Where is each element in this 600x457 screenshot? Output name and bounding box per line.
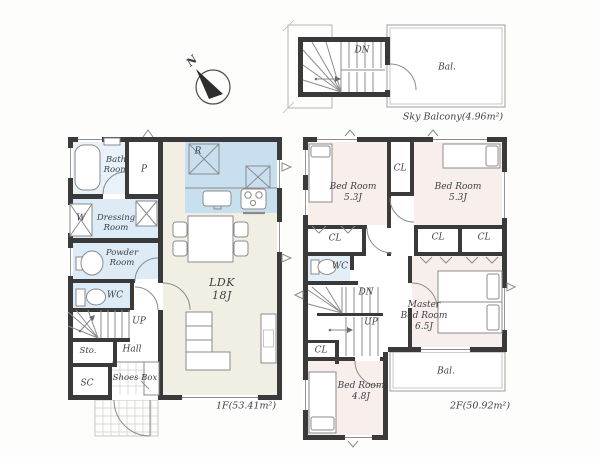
- sky-balcony-plan: [283, 20, 505, 113]
- label-dn-2f: DN: [358, 288, 373, 299]
- label-fridge: R: [195, 147, 202, 158]
- kitchen-sink: [203, 191, 231, 209]
- room-label-bedroom-right: Bed Room 5.3J: [435, 182, 482, 204]
- room-label-bath: Bath Room: [104, 155, 129, 175]
- room-label-wc-2f: WC: [332, 262, 348, 273]
- room-label-storage: Sto.: [80, 346, 97, 356]
- floorplan-page: N Bath Room P W Dressing Room Powder Roo…: [0, 0, 600, 457]
- room-label-balcony-2f: Bal.: [437, 367, 455, 378]
- toilet-1f: [76, 289, 106, 306]
- label-bal-sky: Bal.: [438, 63, 456, 74]
- sky-balcony-caption: Sky Balcony(4.96m²): [403, 111, 503, 122]
- room-label-master: Master Bed Room 6.5J: [401, 300, 448, 332]
- bathtub: [75, 145, 100, 190]
- room-label-bedroom-small: Bed Room 4.8J: [338, 381, 385, 403]
- master-beds: [438, 271, 502, 333]
- bed-left: [309, 144, 332, 202]
- floor2-area-label: 2F(50.92m²): [450, 400, 510, 411]
- tv-board: [261, 314, 276, 363]
- entrance-door: [114, 400, 150, 436]
- label-up-2f: UP: [364, 318, 378, 329]
- entrance-porch: [95, 400, 158, 436]
- bed-right: [443, 144, 500, 168]
- stove: [241, 189, 266, 213]
- room-label-cl-top: CL: [394, 164, 407, 175]
- room-label-wc-1f: WC: [107, 291, 123, 302]
- compass: [196, 69, 230, 104]
- bed-small: [309, 372, 336, 433]
- room-label-sc: SC: [80, 379, 93, 390]
- label-up-1f: UP: [132, 317, 146, 328]
- room-label-pantry: P: [141, 165, 147, 176]
- room-label-bedroom-left: Bed Room 5.3J: [330, 182, 377, 204]
- room-label-cl-left: CL: [329, 234, 342, 245]
- room-label-powder: Powder Room: [106, 248, 138, 268]
- room-label-ldk: LDK 18J: [209, 276, 235, 302]
- bath-counter: [104, 138, 120, 145]
- room-label-cl-mid1: CL: [432, 233, 445, 244]
- floor1-plan: [68, 130, 291, 436]
- room-label-cl-mid2: CL: [478, 233, 491, 244]
- dressing-cabinet: [136, 201, 157, 226]
- room-label-dressing: Dressing Room: [97, 213, 135, 233]
- compass-needle: [196, 69, 223, 99]
- room-label-cl-small: CL: [315, 346, 328, 357]
- room-label-washer: W: [76, 214, 85, 225]
- label-dn-sky: DN: [354, 46, 369, 57]
- room-label-shoes-box: Shoes Box: [113, 373, 158, 383]
- floor1-area-label: 1F(53.41m²): [216, 400, 276, 411]
- room-label-hall: Hall: [123, 345, 142, 356]
